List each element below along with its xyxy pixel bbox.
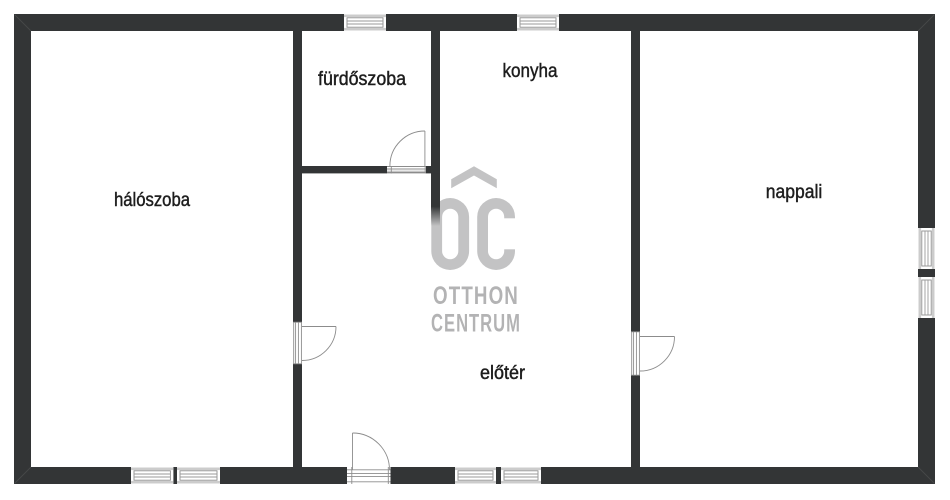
svg-text:konyha: konyha <box>503 60 558 82</box>
svg-text:nappali: nappali <box>766 181 823 203</box>
svg-text:előtér: előtér <box>480 362 525 384</box>
svg-text:CENTRUM: CENTRUM <box>431 310 521 337</box>
svg-text:hálószoba: hálószoba <box>114 189 190 211</box>
svg-text:OTTHON: OTTHON <box>433 281 519 309</box>
svg-text:fürdőszoba: fürdőszoba <box>318 68 406 90</box>
